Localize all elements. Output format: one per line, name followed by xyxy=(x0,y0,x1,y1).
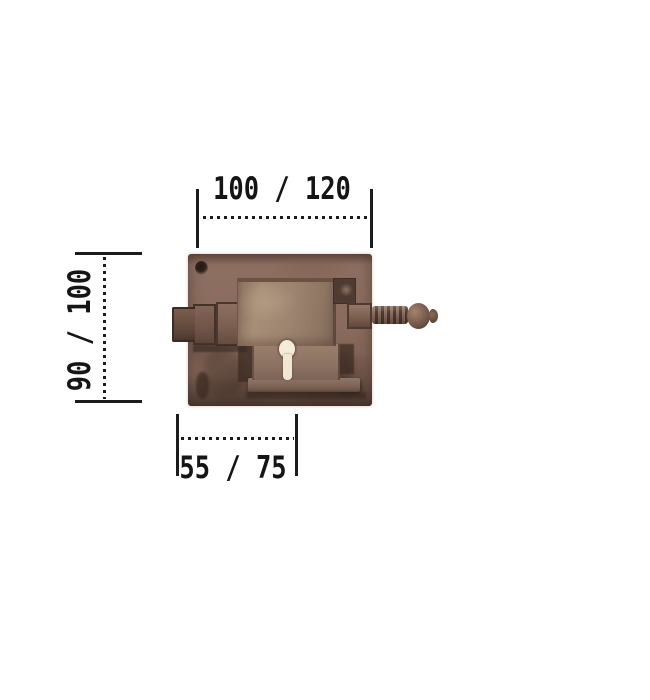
catalog-diagram: 100 / 120 90 / 100 55 / 75 xyxy=(0,0,650,700)
dimension-height-label: 90 / 100 xyxy=(64,264,96,395)
lock-base-plate xyxy=(188,254,372,406)
dimension-height-tick-bottom xyxy=(75,400,142,403)
spindle-shaft xyxy=(372,306,408,324)
case-bottom-shadow xyxy=(246,392,366,399)
case-bottom-ledge xyxy=(248,378,360,392)
latch-guide-block xyxy=(216,302,239,346)
dimension-height-tick-top xyxy=(75,252,142,255)
latch-guide-block xyxy=(193,304,216,345)
rust-patch xyxy=(204,350,242,396)
dimension-backset-label: 55 / 75 xyxy=(151,452,315,484)
case-side-recess xyxy=(333,278,356,304)
case-shoulder-shadow xyxy=(238,344,253,382)
dimension-backset-dotted-line xyxy=(181,437,294,440)
dimension-height-dotted-line xyxy=(103,257,106,399)
latch-bolt xyxy=(172,307,195,342)
lock-case-lower xyxy=(252,344,340,380)
screw-hole-icon xyxy=(195,261,208,275)
keyhole-stem xyxy=(283,354,292,380)
dimension-width-label: 100 / 120 xyxy=(200,173,364,205)
dimension-width-tick-left xyxy=(196,189,199,248)
dimension-width-dotted-line xyxy=(203,216,369,219)
dimension-width-tick-right xyxy=(370,189,373,248)
knob-finial-icon xyxy=(407,303,430,329)
knob-finial-tip xyxy=(429,309,438,323)
rim-lock-photo xyxy=(170,252,450,412)
spindle-base-block xyxy=(347,303,372,329)
lock-case-upper xyxy=(237,278,336,346)
